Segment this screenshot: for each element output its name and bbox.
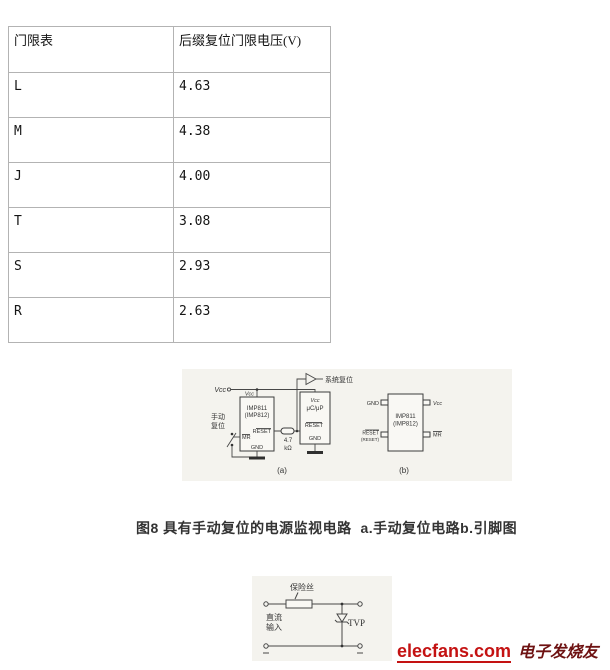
- row-label: M: [9, 118, 174, 163]
- manual-reset-label-2: 复位: [211, 421, 225, 430]
- vcc-terminal: [227, 388, 230, 391]
- table-row: L 4.63: [9, 73, 331, 118]
- pinout-reset-alt-label: (RESET): [361, 437, 380, 442]
- col-header-threshold: 门限表: [9, 27, 174, 73]
- pinout-gnd-label: GND: [367, 401, 379, 407]
- dc-input-label-1: 直流: [266, 612, 282, 622]
- pin-pad: [423, 432, 430, 437]
- pin-pad: [381, 400, 388, 405]
- table-row: M 4.38: [9, 118, 331, 163]
- row-label: J: [9, 163, 174, 208]
- pinout-chip-name-alt: (IMP812): [393, 422, 418, 428]
- fuse-leader-line: [295, 593, 298, 600]
- mcu-vcc-label: Vcc: [310, 398, 319, 404]
- pinout-vcc-label: Vcc: [433, 401, 442, 407]
- figure8-circuit-image: Vcc Vcc IMP811 (IMP812) RESET MR GND 手动 …: [182, 369, 512, 481]
- elecfans-logo-text: elecfans.com: [397, 641, 511, 663]
- table-row: T 3.08: [9, 208, 331, 253]
- node-dot: [341, 645, 344, 648]
- input-terminal: [264, 602, 268, 606]
- figure8-caption: 图8 具有手动复位的电源监视电路 a.手动复位电路b.引脚图: [136, 518, 517, 538]
- gnd-pin-label: GND: [251, 445, 263, 451]
- dc-input-label-2: 输入: [266, 622, 282, 632]
- pin-pad: [381, 432, 388, 437]
- node-dot: [341, 603, 344, 606]
- imp811-chip-name-alt: (IMP812): [245, 413, 270, 419]
- mcu-gnd-label: GND: [309, 436, 321, 442]
- row-label: L: [9, 73, 174, 118]
- table-row: S 2.93: [9, 253, 331, 298]
- row-label: R: [9, 298, 174, 343]
- imp811-chip-name: IMP811: [247, 406, 268, 412]
- vcc-supply-label: Vcc: [214, 387, 226, 394]
- system-reset-label: 系统复位: [325, 375, 353, 384]
- row-value: 4.38: [174, 118, 331, 163]
- mcu-name-label: μC/μP: [307, 406, 324, 412]
- pinout-mr-label: MR: [433, 433, 442, 439]
- row-value: 3.08: [174, 208, 331, 253]
- tvs-diode-triangle: [337, 614, 347, 622]
- buffer-triangle: [306, 374, 316, 385]
- mr-pin-label: MR: [242, 435, 251, 441]
- fuse-body: [286, 600, 312, 608]
- row-label: S: [9, 253, 174, 298]
- table-row: J 4.00: [9, 163, 331, 208]
- tvs-label: TVP: [348, 618, 365, 628]
- output-terminal: [358, 644, 362, 648]
- manual-reset-label-1: 手动: [211, 412, 225, 421]
- figure9-circuit-image: 保险丝 直流 输入 TVP: [252, 576, 392, 661]
- table-header-row: 门限表 后缀复位门限电压(V): [9, 27, 331, 73]
- elecfans-watermark: elecfans.com 电子发烧友: [397, 638, 598, 663]
- circuit-b-tag: (b): [399, 466, 409, 475]
- row-value: 2.63: [174, 298, 331, 343]
- threshold-table: 门限表 后缀复位门限电压(V) L 4.63 M 4.38 J 4.00 T 3…: [8, 26, 331, 343]
- reset-pin-label: RESET: [253, 429, 272, 435]
- row-value: 2.93: [174, 253, 331, 298]
- elecfans-chinese-name: 电子发烧友: [518, 638, 598, 662]
- resistor-body: [281, 428, 294, 434]
- resistor-value: 4.7: [284, 438, 293, 444]
- button-contact: [231, 444, 234, 447]
- pin-pad: [423, 400, 430, 405]
- output-terminal: [358, 602, 362, 606]
- button-contact: [231, 433, 234, 436]
- row-value: 4.00: [174, 163, 331, 208]
- pinout-chip-name: IMP811: [395, 414, 416, 420]
- table-row: R 2.63: [9, 298, 331, 343]
- circuit-a-tag: (a): [277, 466, 287, 475]
- fuse-label: 保险丝: [290, 582, 314, 592]
- input-terminal: [264, 644, 268, 648]
- col-header-voltage: 后缀复位门限电压(V): [174, 27, 331, 73]
- resistor-unit: kΩ: [284, 446, 292, 452]
- row-label: T: [9, 208, 174, 253]
- mcu-reset-label: RESET: [305, 423, 324, 429]
- row-value: 4.63: [174, 73, 331, 118]
- pinout-reset-label: RESET: [362, 431, 379, 437]
